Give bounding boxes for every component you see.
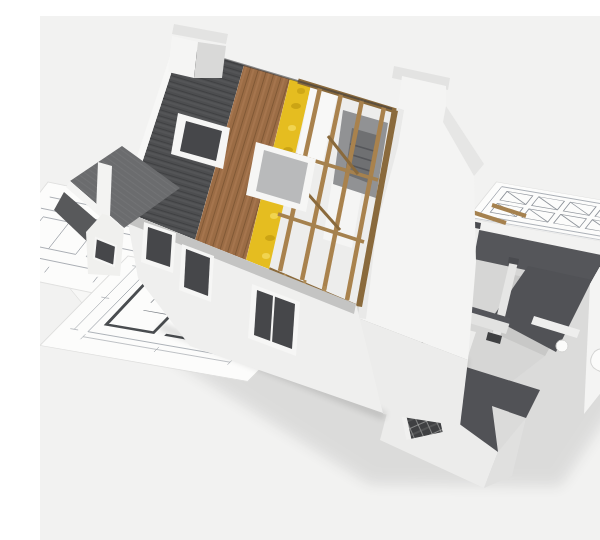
wing-post <box>96 162 112 216</box>
house-render-canvas <box>40 16 600 540</box>
toilet <box>556 340 568 352</box>
chimney-front <box>168 36 198 78</box>
architectural-render: 3D cutaway render of a house under const… <box>40 16 600 540</box>
chimney-side <box>194 42 226 78</box>
